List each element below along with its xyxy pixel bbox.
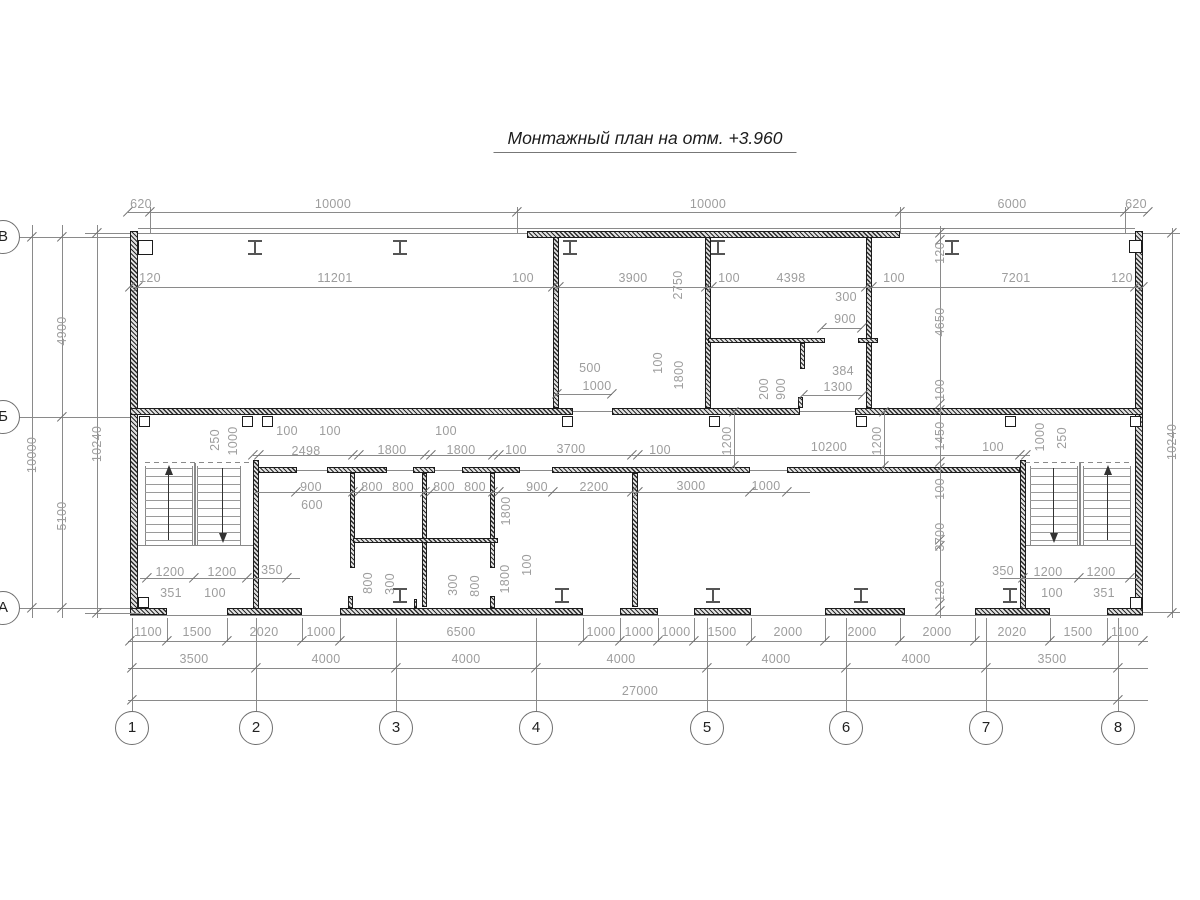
axis-circle-column: 4 <box>519 711 553 745</box>
wall-segment <box>552 467 750 473</box>
drawing-line <box>803 395 863 396</box>
ibeam-column-symbol <box>569 240 571 254</box>
dimension-label: 11201 <box>317 271 352 285</box>
drawing-line <box>1083 466 1084 545</box>
dimension-label: 800 <box>464 480 486 494</box>
ibeam-column-symbol <box>860 588 862 602</box>
dimension-label: 120 <box>1111 271 1133 285</box>
wall-segment <box>490 473 495 568</box>
stair-tread <box>197 468 240 469</box>
column-marker <box>139 416 150 427</box>
floor-plan-canvas: Монтажный план на отм. +3.960 6201000010… <box>0 0 1200 900</box>
dimension-label: 350 <box>261 563 283 577</box>
dimension-label: 120 <box>933 580 947 602</box>
ibeam-column-symbol <box>706 601 720 603</box>
column-marker <box>709 416 720 427</box>
ibeam-column-symbol <box>399 588 401 602</box>
stair-tread <box>197 476 240 477</box>
stair-arrow-stem <box>1053 468 1054 534</box>
dimension-label: 1000 <box>661 625 690 639</box>
dimension-label: 10200 <box>811 440 847 454</box>
dimension-label: 2750 <box>671 270 685 299</box>
stair-tread <box>197 484 240 485</box>
drawing-line <box>128 668 1148 669</box>
drawing-line <box>884 410 885 468</box>
dimension-label: 3000 <box>676 479 705 493</box>
wall-segment <box>612 408 800 415</box>
dimension-label: 100 <box>512 271 534 285</box>
dimension-label: 1000 <box>226 426 240 455</box>
wall-segment <box>327 467 387 473</box>
stair-arrow-stem <box>168 474 169 540</box>
dashed-line <box>145 462 250 463</box>
wall-segment <box>800 343 805 369</box>
wall-segment <box>340 608 583 615</box>
dimension-label: 250 <box>208 429 222 451</box>
dimension-label: 600 <box>301 498 323 512</box>
stair-arrow-stem <box>1107 474 1108 540</box>
dimension-label: 2200 <box>579 480 608 494</box>
drawing-line <box>85 233 130 234</box>
drawing-line <box>1143 233 1180 234</box>
column-marker <box>1130 416 1141 427</box>
dimension-label: 620 <box>1125 197 1147 211</box>
wall-segment <box>258 467 297 473</box>
drawing-line <box>573 411 612 412</box>
wall-segment <box>490 596 495 608</box>
dimension-label: 300 <box>835 290 857 304</box>
drawing-line <box>138 545 253 546</box>
column-marker <box>1129 240 1142 253</box>
wall-segment <box>227 608 302 615</box>
dimension-label: 800 <box>468 575 482 597</box>
drawing-line <box>19 608 130 609</box>
dimension-label: 200 <box>757 378 771 400</box>
dimension-label: 27000 <box>622 684 658 698</box>
dimension-label: 1800 <box>377 443 406 457</box>
dimension-label: 100 <box>883 271 905 285</box>
wall-segment <box>130 408 573 415</box>
dimension-label: 10000 <box>315 197 351 211</box>
dimension-label: 4000 <box>901 652 930 666</box>
dimension-label: 4900 <box>55 316 69 345</box>
wall-segment <box>825 608 905 615</box>
dimension-label: 1200 <box>1086 565 1115 579</box>
axis-circle-column: 5 <box>690 711 724 745</box>
dimension-label: 800 <box>433 480 455 494</box>
wall-segment <box>866 237 872 408</box>
dimension-label: 1000 <box>751 479 780 493</box>
column-marker <box>138 240 153 255</box>
dimension-label: 100 <box>520 554 534 576</box>
dimension-label: 6500 <box>446 625 475 639</box>
drawing-line <box>1130 466 1131 545</box>
dimension-label: 1800 <box>498 564 512 593</box>
dimension-label: 800 <box>361 572 375 594</box>
drawing-line <box>192 466 193 545</box>
wall-segment <box>708 338 825 343</box>
dimension-label: 100 <box>933 478 947 500</box>
stair-direction-arrow <box>1050 533 1058 543</box>
wall-segment <box>787 467 1020 473</box>
dimension-label: 351 <box>1093 586 1115 600</box>
drawing-line <box>130 287 1143 288</box>
dimension-label: 500 <box>579 361 601 375</box>
dimension-label: 100 <box>718 271 740 285</box>
wall-segment <box>1020 460 1026 613</box>
axis-circle-row: А <box>0 591 20 625</box>
dimension-label: 1800 <box>672 360 686 389</box>
dimension-label: 120 <box>139 271 161 285</box>
dimension-label: 1200 <box>1033 565 1062 579</box>
dimension-label: 1200 <box>207 565 236 579</box>
plan-drawing: 6201000010000600062012011201100390010043… <box>0 0 1200 900</box>
drawing-line <box>297 470 327 471</box>
column-marker <box>242 416 253 427</box>
wall-segment <box>858 338 878 343</box>
drawing-line <box>128 212 1148 213</box>
dimension-label: 6000 <box>997 197 1026 211</box>
ibeam-column-symbol <box>1009 588 1011 602</box>
axis-circle-row: В <box>0 220 20 254</box>
drawing-line <box>62 225 63 618</box>
column-marker <box>138 597 149 608</box>
dimension-label: 4398 <box>776 271 805 285</box>
axis-circle-column: 2 <box>239 711 273 745</box>
ibeam-column-symbol <box>399 240 401 254</box>
ibeam-column-symbol <box>1003 601 1017 603</box>
dimension-label: 1800 <box>499 496 513 525</box>
drawing-line <box>1026 545 1135 546</box>
drawing-line <box>240 466 241 545</box>
dimension-label: 1500 <box>1063 625 1092 639</box>
drawing-line <box>194 463 196 545</box>
dimension-label: 100 <box>982 440 1004 454</box>
dimension-label: 620 <box>130 197 152 211</box>
ibeam-column-symbol <box>393 253 407 255</box>
dimension-label: 1000 <box>306 625 335 639</box>
column-marker <box>1005 416 1016 427</box>
wall-segment <box>705 237 711 408</box>
dimension-label: 300 <box>446 574 460 596</box>
ibeam-column-symbol <box>254 240 256 254</box>
dimension-label: 4000 <box>606 652 635 666</box>
column-marker <box>1130 597 1142 609</box>
dimension-label: 7201 <box>1001 271 1030 285</box>
dimension-label: 1000 <box>582 379 611 393</box>
wall-segment <box>1107 608 1143 615</box>
drawing-line <box>1030 466 1031 545</box>
ibeam-column-symbol <box>711 253 725 255</box>
drawing-line <box>557 394 612 395</box>
wall-segment <box>553 237 559 408</box>
drawing-line <box>1077 466 1078 545</box>
dimension-label: 900 <box>526 480 548 494</box>
drawing-line <box>1143 612 1180 613</box>
ibeam-column-symbol <box>854 601 868 603</box>
dimension-label: 1200 <box>870 426 884 455</box>
dimension-label: 3700 <box>933 522 947 551</box>
dimension-label: 100 <box>276 424 298 438</box>
dimension-label: 120 <box>933 242 947 264</box>
dimension-label: 100 <box>933 379 947 401</box>
column-marker <box>856 416 867 427</box>
wall-segment <box>350 473 355 568</box>
dimension-label: 1100 <box>1111 625 1139 639</box>
drawing-line <box>1079 463 1081 545</box>
dimension-label: 1500 <box>707 625 736 639</box>
stair-direction-arrow <box>219 533 227 543</box>
dimension-label: 1000 <box>586 625 615 639</box>
dimension-label: 3500 <box>1037 652 1066 666</box>
drawing-line <box>138 228 1135 229</box>
dimension-label: 5100 <box>55 501 69 530</box>
wall-segment <box>414 599 417 608</box>
dimension-label: 800 <box>361 480 383 494</box>
ibeam-column-symbol <box>951 240 953 254</box>
drawing-line <box>19 237 130 238</box>
drawing-line <box>900 233 1135 234</box>
stair-arrow-stem <box>222 468 223 534</box>
stair-tread <box>197 492 240 493</box>
stair-tread <box>145 540 192 541</box>
dimension-label: 1200 <box>720 426 734 455</box>
dimension-label: 2020 <box>249 625 278 639</box>
dimension-label: 2000 <box>773 625 802 639</box>
ibeam-column-symbol <box>393 601 407 603</box>
dimension-label: 100 <box>435 424 457 438</box>
dimension-label: 384 <box>832 364 854 378</box>
drawing-line <box>128 700 1148 701</box>
dimension-label: 2000 <box>922 625 951 639</box>
stair-tread <box>197 516 240 517</box>
dimension-label: 2498 <box>291 444 320 458</box>
dashed-line <box>1025 462 1130 463</box>
axis-circle-column: 7 <box>969 711 1003 745</box>
dimension-label: 4000 <box>451 652 480 666</box>
dimension-label: 2000 <box>847 625 876 639</box>
dimension-label: 10240 <box>90 426 104 462</box>
drawing-line <box>138 233 527 234</box>
dimension-label: 100 <box>319 424 341 438</box>
wall-segment <box>694 608 751 615</box>
drawing-line <box>435 470 462 471</box>
dimension-label: 3700 <box>556 442 585 456</box>
drawing-line <box>19 417 130 418</box>
dimension-label: 1800 <box>446 443 475 457</box>
dimension-label: 100 <box>1041 586 1063 600</box>
column-marker <box>562 416 573 427</box>
drawing-line <box>97 225 98 618</box>
dimension-label: 2020 <box>997 625 1026 639</box>
dimension-label: 250 <box>1055 427 1069 449</box>
ibeam-column-symbol <box>563 253 577 255</box>
drawing-line <box>387 470 413 471</box>
ibeam-column-symbol <box>712 588 714 602</box>
drawing-line <box>253 455 1030 456</box>
axis-circle-column: 3 <box>379 711 413 745</box>
dimension-label: 10000 <box>690 197 726 211</box>
wall-segment <box>253 460 259 613</box>
dimension-label: 1300 <box>823 380 852 394</box>
stair-tread <box>197 524 240 525</box>
ibeam-column-symbol <box>945 253 959 255</box>
dimension-label: 350 <box>992 564 1014 578</box>
drawing-line <box>197 466 198 545</box>
stair-tread <box>197 508 240 509</box>
axis-circle-column: 8 <box>1101 711 1135 745</box>
dimension-label: 4650 <box>933 307 947 336</box>
drawing-line <box>800 411 855 412</box>
dimension-label: 10240 <box>1165 424 1179 460</box>
wall-segment <box>855 408 1143 415</box>
drawing-line <box>734 410 735 468</box>
drawing-line <box>130 615 1143 616</box>
drawing-line <box>520 470 552 471</box>
dimension-label: 1200 <box>155 565 184 579</box>
dimension-label: 351 <box>160 586 182 600</box>
dimension-label: 3500 <box>179 652 208 666</box>
stair-tread <box>1083 540 1130 541</box>
stair-direction-arrow <box>165 465 173 475</box>
wall-segment <box>348 596 353 608</box>
wall-segment <box>527 231 900 238</box>
axis-circle-row: Б <box>0 400 20 434</box>
dimension-label: 900 <box>774 378 788 400</box>
axis-circle-column: 6 <box>829 711 863 745</box>
dimension-label: 300 <box>383 573 397 595</box>
dimension-label: 10000 <box>25 437 39 473</box>
dimension-label: 900 <box>834 312 856 326</box>
ibeam-column-symbol <box>717 240 719 254</box>
dimension-label: 100 <box>649 443 671 457</box>
wall-segment <box>353 538 498 543</box>
dimension-label: 4000 <box>761 652 790 666</box>
dimension-label: 1450 <box>933 421 947 450</box>
dimension-label: 1000 <box>624 625 653 639</box>
drawing-line <box>145 466 146 545</box>
ibeam-column-symbol <box>561 588 563 602</box>
wall-segment <box>620 608 658 615</box>
drawing-line <box>128 641 1148 642</box>
column-marker <box>262 416 273 427</box>
dimension-label: 100 <box>651 352 665 374</box>
axis-circle-column: 1 <box>115 711 149 745</box>
dimension-label: 1500 <box>182 625 211 639</box>
wall-segment <box>975 608 1050 615</box>
drawing-line <box>750 470 787 471</box>
dimension-label: 100 <box>204 586 226 600</box>
dimension-label: 4000 <box>311 652 340 666</box>
ibeam-column-symbol <box>248 253 262 255</box>
drawing-line <box>822 328 862 329</box>
dimension-label: 1100 <box>134 625 162 639</box>
ibeam-column-symbol <box>555 601 569 603</box>
dimension-label: 1000 <box>1033 422 1047 451</box>
stair-direction-arrow <box>1104 465 1112 475</box>
stair-tread <box>197 500 240 501</box>
drawing-line <box>32 225 33 618</box>
dimension-label: 800 <box>392 480 414 494</box>
dimension-label: 3900 <box>618 271 647 285</box>
dimension-label: 100 <box>505 443 527 457</box>
dimension-label: 900 <box>300 480 322 494</box>
